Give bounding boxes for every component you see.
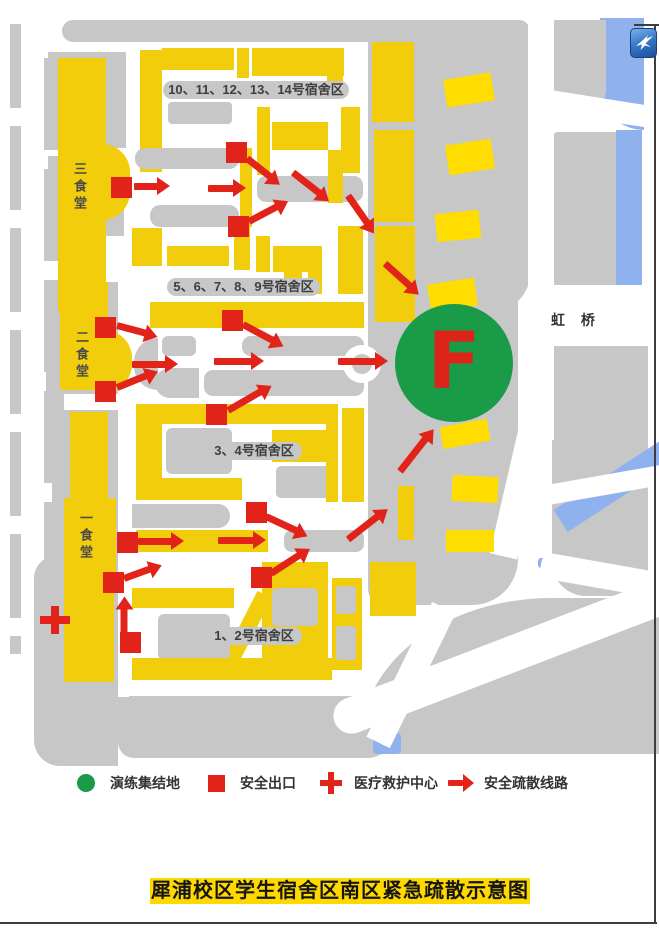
safety-exit-marker xyxy=(111,177,132,198)
safety-exit-marker xyxy=(95,317,116,338)
safety-exit-marker xyxy=(246,502,267,523)
map-shape xyxy=(132,228,162,266)
legend-item-medical: 医疗救护中心 xyxy=(318,768,438,798)
map-shape xyxy=(341,107,360,173)
safety-exit-marker xyxy=(103,572,124,593)
map-shape xyxy=(150,205,239,227)
map-shape xyxy=(162,336,196,356)
map-shape xyxy=(370,562,416,616)
legend-item-route: 安全疏散线路 xyxy=(448,768,568,798)
cafeteria-label: 二食堂 xyxy=(72,330,91,381)
assembly-letter: F xyxy=(395,304,513,420)
legend-label: 安全出口 xyxy=(240,773,296,793)
cafeteria-1-building xyxy=(70,412,108,500)
legend-item-exit: 安全出口 xyxy=(204,768,296,798)
map-shape xyxy=(132,504,230,528)
evacuation-map-page: F 虹 桥 10、11、12、13、14号宿舍区5、6、7、8、9号宿舍区3、4… xyxy=(0,0,659,928)
map-shape xyxy=(168,102,232,124)
map-shape xyxy=(132,588,234,608)
legend-item-assembly: 演练集结地 xyxy=(74,768,180,798)
page-border xyxy=(634,24,659,26)
area-label: 10、11、12、13、14号宿舍区 xyxy=(163,81,349,99)
map-shape xyxy=(237,48,249,78)
map-shape xyxy=(204,370,364,396)
map-shape xyxy=(336,626,356,660)
area-label: 3、4号宿舍区 xyxy=(206,442,302,460)
area-label: 1、2号宿舍区 xyxy=(206,627,302,645)
medical-cross-marker xyxy=(40,606,70,634)
map-shape xyxy=(276,466,330,498)
evacuation-route-arrow xyxy=(138,538,172,545)
map-title: 犀浦校区学生宿舍区南区紧急疏散示意图 xyxy=(150,878,530,904)
map-shape xyxy=(64,582,114,682)
cafeteria-label: 三食堂 xyxy=(70,162,89,213)
evacuation-route-arrow xyxy=(132,361,166,368)
map-shape xyxy=(256,236,270,272)
map-shape xyxy=(132,658,332,680)
map-shape xyxy=(374,130,414,222)
evacuation-route-arrow xyxy=(218,537,254,544)
hummingbird-watermark-icon[interactable] xyxy=(630,28,657,58)
safety-exit-marker xyxy=(117,532,138,553)
map-shape xyxy=(150,302,364,328)
evacuation-route-arrow xyxy=(338,358,376,365)
map-shape xyxy=(435,210,482,242)
evacuation-route-arrow xyxy=(134,183,158,190)
map-shape xyxy=(326,418,338,502)
map-shape xyxy=(167,246,229,266)
assembly-point-marker: F xyxy=(395,304,513,422)
dashed-road xyxy=(10,24,21,654)
legend-label: 演练集结地 xyxy=(110,773,180,793)
area-label: 5、6、7、8、9号宿舍区 xyxy=(167,278,320,296)
evacuation-route-arrow xyxy=(116,322,147,337)
map-shape xyxy=(636,36,653,50)
evacuation-route-arrow xyxy=(208,185,234,192)
map-shape xyxy=(162,48,234,70)
page-border xyxy=(0,922,657,924)
map-shape xyxy=(338,226,363,294)
medical-legend-icon xyxy=(318,771,344,795)
legend-label: 安全疏散线路 xyxy=(484,773,568,793)
evacuation-route-arrow xyxy=(265,513,299,534)
evacuation-route-arrow xyxy=(247,203,279,224)
exit-legend-icon xyxy=(204,771,230,795)
map-shape xyxy=(135,148,239,169)
evacuation-route-arrow xyxy=(214,358,252,365)
cafeteria-label: 一食堂 xyxy=(76,511,95,562)
map-shape xyxy=(272,122,328,150)
legend-label: 医疗救护中心 xyxy=(354,773,438,793)
map-shape xyxy=(372,42,414,122)
map-shape xyxy=(342,408,364,502)
safety-exit-marker xyxy=(206,404,227,425)
safety-exit-marker xyxy=(226,142,247,163)
safety-exit-marker xyxy=(95,381,116,402)
river xyxy=(616,130,642,287)
map-shape xyxy=(336,586,356,614)
map-shape xyxy=(136,478,242,500)
map-shape xyxy=(398,486,414,540)
road xyxy=(528,16,554,440)
evacuation-route-arrow xyxy=(121,608,128,636)
legend: 演练集结地安全出口医疗救护中心安全疏散线路 xyxy=(0,768,659,798)
map-shape xyxy=(446,530,494,552)
route-legend-icon xyxy=(448,771,474,795)
assembly-legend-icon xyxy=(74,771,100,795)
bridge-label: 虹 桥 xyxy=(551,310,601,330)
safety-exit-marker xyxy=(222,310,243,331)
map-shape xyxy=(272,588,318,626)
map-shape xyxy=(451,475,498,503)
hummingbird-icon xyxy=(632,32,656,56)
safety-exit-marker xyxy=(228,216,249,237)
